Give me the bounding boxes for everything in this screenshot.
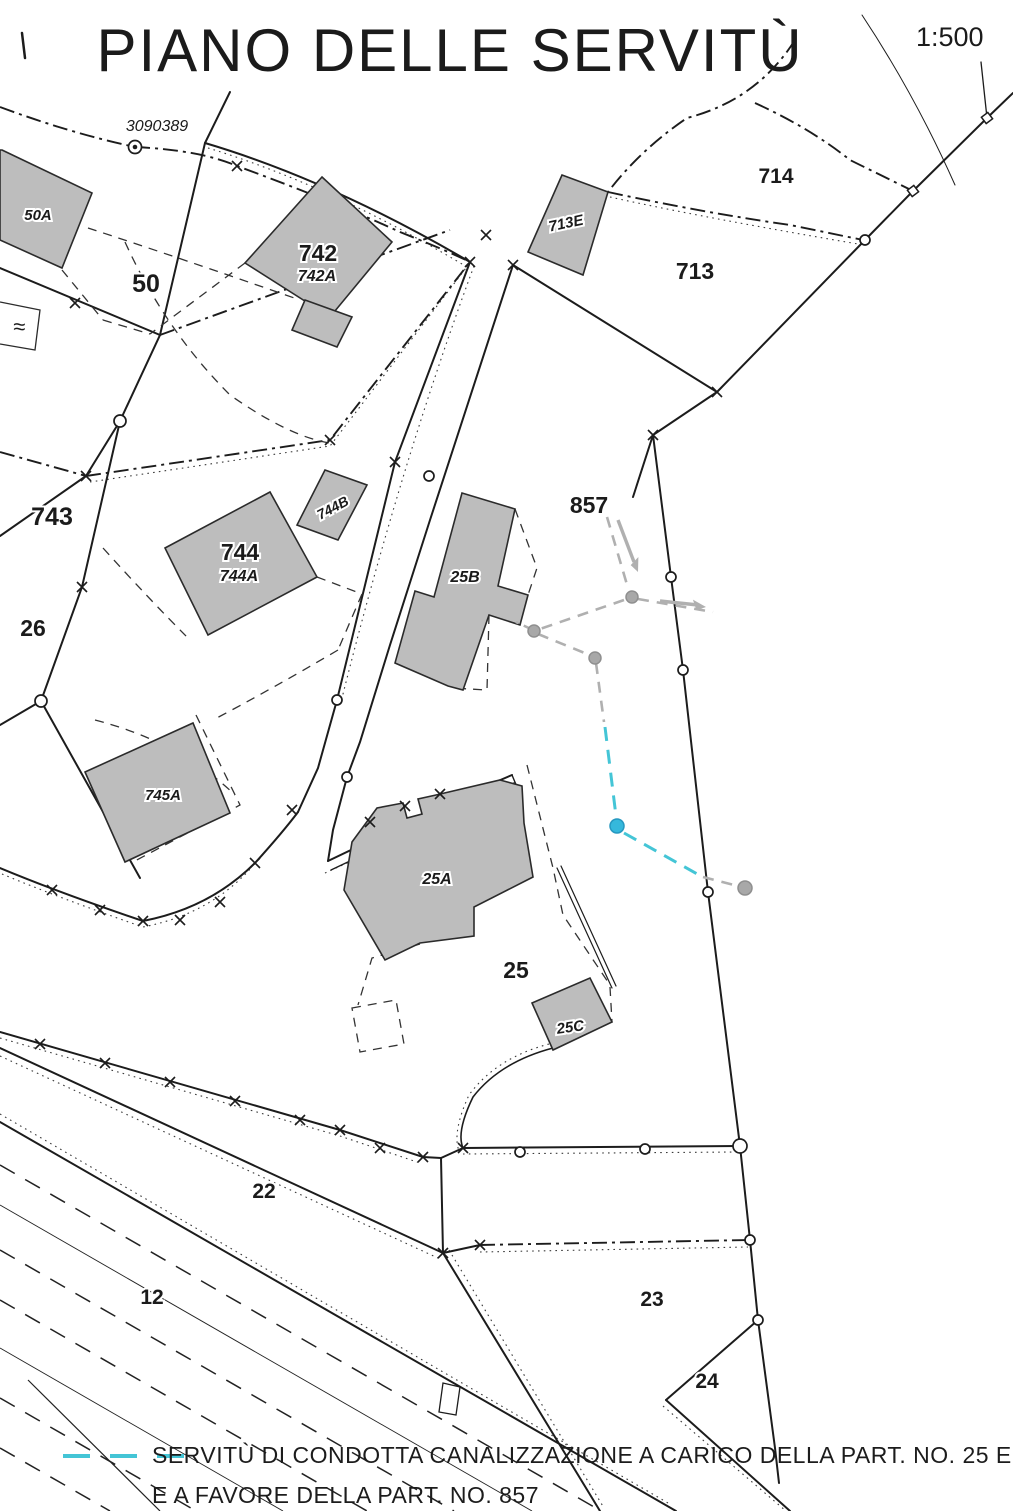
cadastral-plan-page: { "title": "PIANO DELLE SERVITÙ", "scale… [0, 0, 1013, 1511]
building-label-745A: 745A [145, 787, 181, 804]
building-label-25B: 25B [449, 569, 479, 586]
fence-cross-marker [508, 260, 518, 270]
building-25B [395, 493, 528, 690]
fence-cross-marker [465, 257, 475, 267]
building-25C [532, 978, 612, 1050]
parcel-label-24: 24 [695, 1370, 719, 1393]
fence-cross-marker [375, 1143, 385, 1153]
dashed-eaves-lines [62, 228, 612, 1052]
building-label-50A: 50A [24, 207, 52, 224]
parcel-label-22: 22 [252, 1180, 275, 1203]
parcel-label-50: 50 [132, 270, 160, 298]
manhole-node [738, 881, 752, 895]
servitude-node-blue [610, 819, 624, 833]
parcel-label-713: 713 [676, 258, 714, 284]
building-25A [344, 780, 533, 960]
building-label-25A: 25A [421, 871, 451, 888]
parcel-label-714: 714 [758, 165, 793, 188]
boundary-point-circle [332, 695, 342, 705]
boundary-point-circle [35, 695, 47, 707]
parcel-label-857: 857 [570, 492, 608, 518]
buildings [0, 150, 612, 1050]
building-label-742A: 742A [298, 268, 336, 285]
legend-text-line2: E A FAVORE DELLA PART. NO. 857 [152, 1482, 539, 1509]
fence-cross-marker [287, 805, 297, 815]
fence-cross-marker [215, 897, 225, 907]
boundary-point-circle [342, 772, 352, 782]
boundary-point-circle [678, 665, 688, 675]
boundary-point-circle [860, 235, 870, 245]
survey-point-icon [129, 141, 142, 154]
cadastral-map-canvas: 5074271371474374426857252212232450A742A7… [0, 0, 1013, 1511]
building-742-annex [292, 300, 352, 347]
fence-cross-marker [712, 387, 722, 397]
parcel-label-12: 12 [140, 1286, 163, 1309]
fence-cross-marker [175, 915, 185, 925]
arrowhead-down-icon [629, 557, 643, 574]
parcel-label-744: 744 [221, 539, 260, 565]
parcel-label-742: 742 [299, 240, 337, 266]
servitude-line-cyan [605, 727, 699, 875]
boundary-point-circle [424, 471, 434, 481]
boundary-point-circle [753, 1315, 763, 1325]
boundary-point-circle [745, 1235, 755, 1245]
boundary-point-circle [703, 887, 713, 897]
legend-text-line1: SERVITÙ DI CONDOTTA CANALIZZAZIONE A CAR… [152, 1442, 1012, 1469]
parcel-label-23: 23 [640, 1288, 663, 1311]
parcel-label-25: 25 [503, 957, 529, 983]
manhole-node [528, 625, 540, 637]
fence-cross-marker [250, 858, 260, 868]
boundary-point-circle [666, 572, 676, 582]
building-label-744A: 744A [220, 568, 258, 585]
survey-point-label-3090389: 3090389 [126, 118, 188, 135]
parcel-label-26: 26 [20, 615, 46, 641]
fence-cross-marker [481, 230, 491, 240]
fence-cross-marker [325, 435, 335, 445]
boundary-point-circle [114, 415, 126, 427]
manhole-node [626, 591, 638, 603]
boundary-point-circle [515, 1147, 525, 1157]
fence-cross-marker [232, 161, 242, 171]
boundary-point-circle [640, 1144, 650, 1154]
boundary-markers [35, 112, 993, 1325]
boundary-point-circle [733, 1139, 747, 1153]
manhole-node [589, 652, 601, 664]
parcel-label-743: 743 [31, 503, 73, 531]
water-symbol-≈: ≈ [13, 314, 25, 339]
